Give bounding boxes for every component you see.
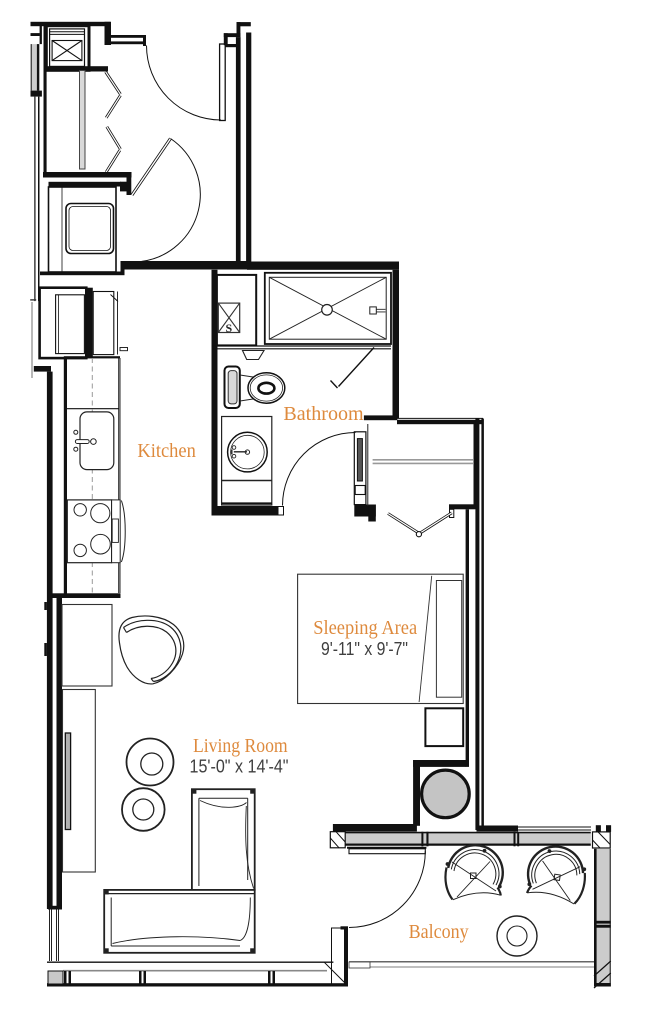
- svg-text:9'-11" x 9'-7": 9'-11" x 9'-7": [321, 639, 408, 659]
- svg-text:Living Room: Living Room: [193, 735, 288, 757]
- svg-text:15'-0" x 14'-4": 15'-0" x 14'-4": [190, 756, 289, 776]
- svg-text:Sleeping Area: Sleeping Area: [313, 618, 417, 639]
- svg-text:Kitchen: Kitchen: [137, 440, 196, 462]
- svg-text:Balcony: Balcony: [409, 921, 469, 943]
- svg-text:S: S: [225, 321, 232, 335]
- svg-text:Bathroom: Bathroom: [283, 403, 364, 425]
